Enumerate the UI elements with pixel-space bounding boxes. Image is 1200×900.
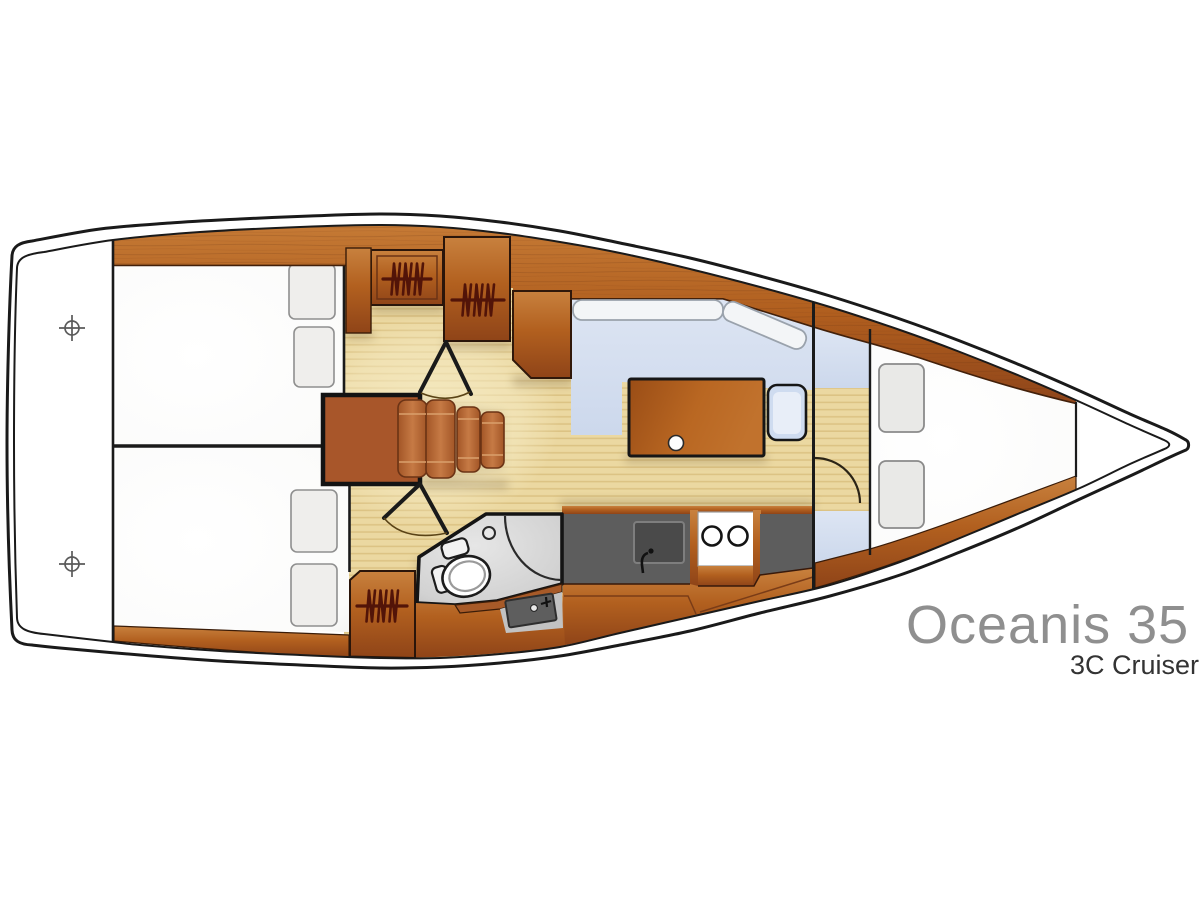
svg-text:Oceanis 35: Oceanis 35: [906, 595, 1189, 655]
svg-text:3C Cruiser: 3C Cruiser: [1070, 650, 1199, 680]
